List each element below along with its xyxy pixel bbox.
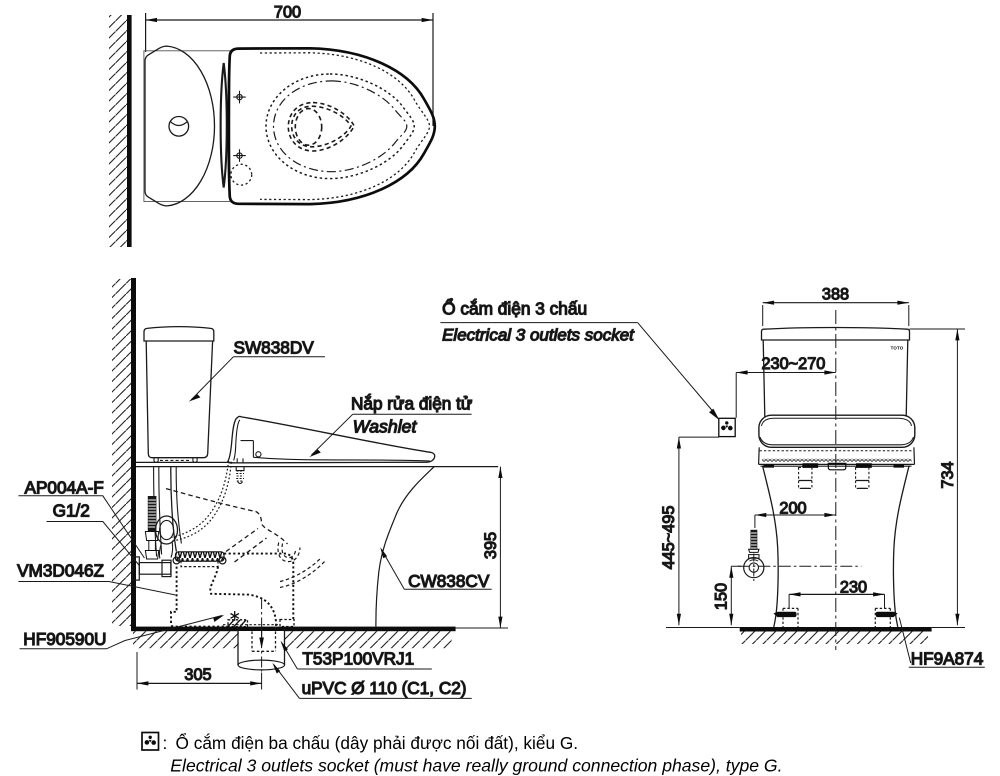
svg-text:uPVC Ø 110 (C1, C2): uPVC Ø 110 (C1, C2) [302,678,467,698]
svg-text:734: 734 [939,461,957,488]
svg-text:G1/2: G1/2 [53,501,90,521]
svg-text:395: 395 [482,532,500,559]
svg-text:TOTO: TOTO [891,345,904,350]
svg-text:388: 388 [822,286,849,304]
svg-text:445~495: 445~495 [660,506,678,570]
svg-text:150: 150 [712,583,730,610]
svg-text:T53P100VRJ1: T53P100VRJ1 [302,649,414,669]
svg-text:Electrical 3 outlets socket (m: Electrical 3 outlets socket (must have r… [170,755,782,775]
svg-text:CW838CV: CW838CV [408,571,490,591]
svg-text:Ổ cắm điện 3 chấu: Ổ cắm điện 3 chấu [442,298,587,318]
svg-text:305: 305 [184,666,211,684]
svg-text:200: 200 [779,499,806,517]
svg-text:230~270: 230~270 [762,355,826,373]
svg-text:Ổ cắm điện ba chấu (dây phải đ: Ổ cắm điện ba chấu (dây phải được nối đấ… [176,733,579,753]
svg-text:Washlet: Washlet [353,417,418,437]
svg-text:Nắp rửa điện tử: Nắp rửa điện tử [351,394,472,414]
svg-text:HF9A874: HF9A874 [911,649,984,669]
svg-text::: : [163,733,168,753]
svg-text:VM3D046Z: VM3D046Z [17,561,104,581]
svg-text:Electrical 3 outlets socket: Electrical 3 outlets socket [442,325,635,344]
svg-text:230: 230 [840,578,867,596]
svg-text:AP004A-F: AP004A-F [25,477,104,497]
svg-text:HF90590U: HF90590U [23,629,106,649]
svg-text:700: 700 [274,3,301,21]
svg-text:SW838DV: SW838DV [234,337,315,357]
